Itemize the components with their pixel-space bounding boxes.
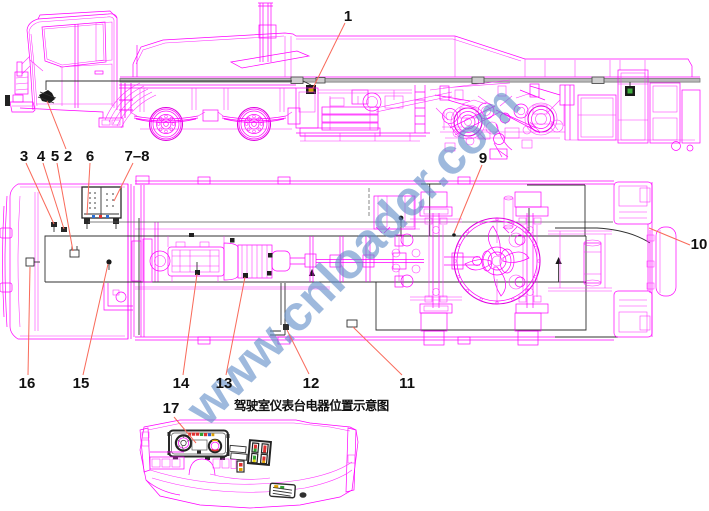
svg-text:驾驶室仪表台电器位置示意图: 驾驶室仪表台电器位置示意图 bbox=[234, 398, 389, 413]
svg-text:3: 3 bbox=[20, 148, 28, 165]
svg-text:9: 9 bbox=[479, 150, 487, 167]
svg-text:16: 16 bbox=[19, 375, 36, 392]
svg-text:11: 11 bbox=[399, 375, 415, 392]
svg-text:4: 4 bbox=[37, 148, 46, 165]
svg-text:5: 5 bbox=[51, 148, 59, 165]
svg-text:14: 14 bbox=[173, 375, 190, 392]
svg-text:10: 10 bbox=[691, 236, 708, 253]
svg-text:17: 17 bbox=[163, 400, 180, 417]
svg-text:6: 6 bbox=[86, 148, 94, 165]
svg-text:2: 2 bbox=[64, 148, 72, 165]
svg-text:15: 15 bbox=[73, 375, 90, 392]
svg-text:1: 1 bbox=[344, 8, 352, 25]
svg-text:7–8: 7–8 bbox=[124, 148, 149, 165]
svg-text:12: 12 bbox=[303, 375, 320, 392]
svg-text:13: 13 bbox=[216, 375, 233, 392]
